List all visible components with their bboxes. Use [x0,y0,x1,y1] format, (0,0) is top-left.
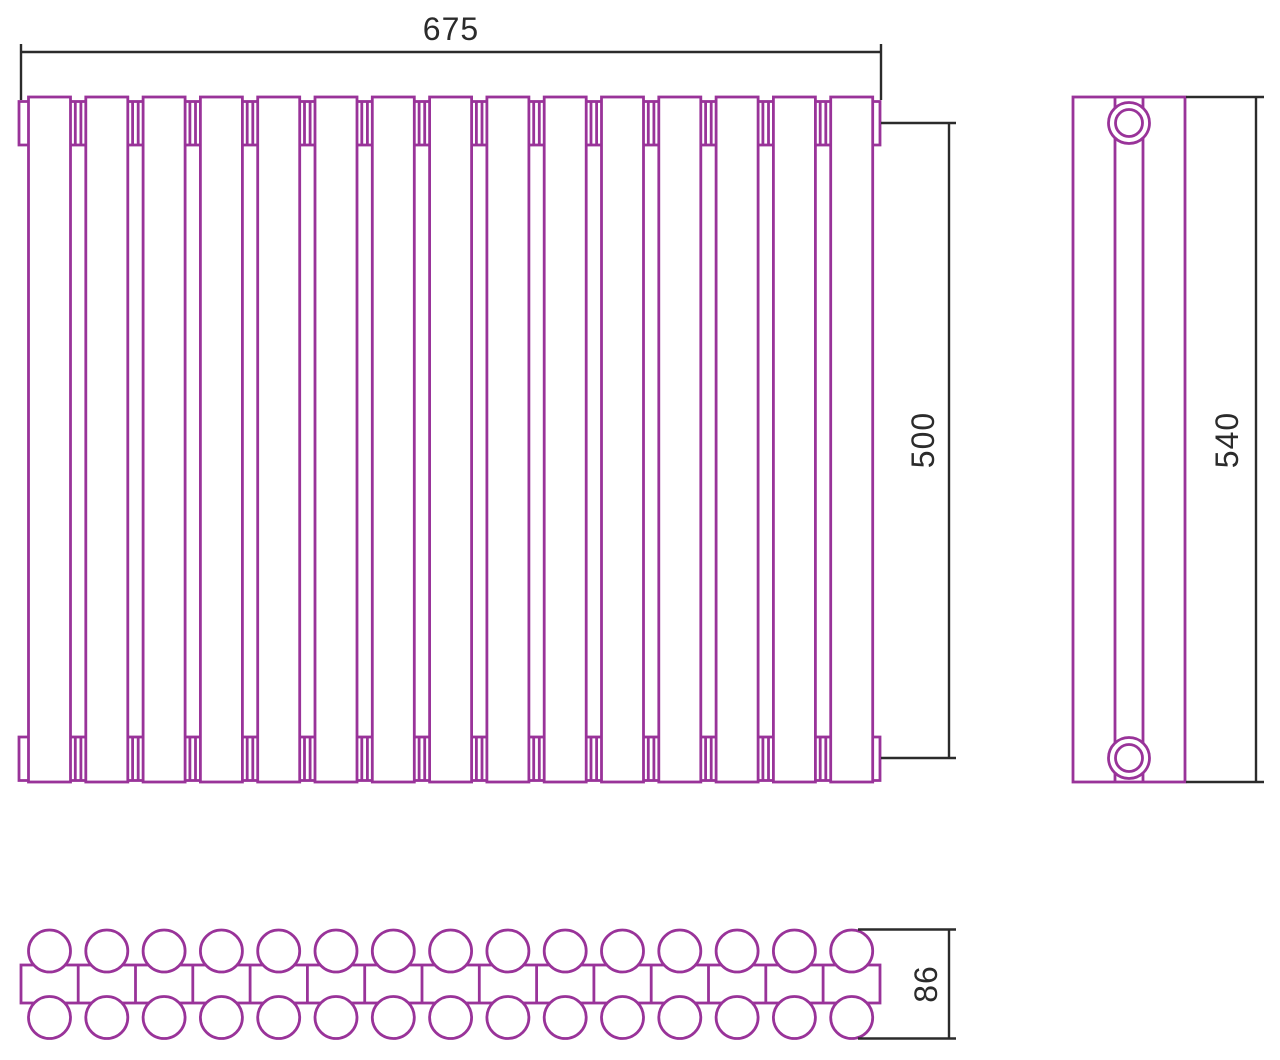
tube-cross-section [602,930,644,972]
radiator-section [602,97,644,782]
side-height-dimension-label: 540 [1209,412,1245,468]
tube-cross-section [372,997,414,1039]
connection-port [1116,110,1143,137]
tube-cross-section [544,930,586,972]
radiator-section [372,97,414,782]
drawing-canvas: 675 500 540 86 [0,0,1280,1060]
technical-drawing: 675 500 540 86 [0,0,1280,1060]
radiator-section [487,97,529,782]
radiator-section [200,97,242,782]
mounting-tab [19,102,29,146]
tube-cross-section [430,930,472,972]
tube-cross-section [143,930,185,972]
radiator-section [29,97,71,782]
side-body [1073,97,1185,782]
tube-cross-section [602,997,644,1039]
radiator-section [544,97,586,782]
tube-cross-section [831,930,873,972]
side-view [1073,97,1185,782]
tube-cross-section [773,930,815,972]
height-dimension: 500 [881,123,956,758]
tube-cross-section [716,930,758,972]
tube-cross-section [430,997,472,1039]
connection-port [1116,745,1143,772]
tube-cross-section [659,930,701,972]
width-dimension-label: 675 [423,11,479,47]
radiator-section [315,97,357,782]
radiator-section [430,97,472,782]
height-dimension-label: 500 [905,412,941,468]
front-view [19,97,880,782]
tube-cross-section [487,930,529,972]
tube-cross-section [659,997,701,1039]
tube-cross-section [86,997,128,1039]
tube-cross-section [143,997,185,1039]
mounting-tab [19,737,29,781]
tube-cross-section [831,997,873,1039]
tube-cross-section [200,997,242,1039]
tube-cross-section [86,930,128,972]
side-height-dimension: 540 [1186,97,1264,782]
radiator-section [143,97,185,782]
tube-cross-section [200,930,242,972]
top-view [21,930,880,1039]
tube-cross-section [372,930,414,972]
tube-cross-section [315,930,357,972]
tube-cross-section [258,930,300,972]
radiator-section [659,97,701,782]
radiator-section [716,97,758,782]
radiator-section [831,97,873,782]
tube-cross-section [773,997,815,1039]
width-dimension: 675 [21,11,881,100]
radiator-section [86,97,128,782]
radiator-section [258,97,300,782]
tube-cross-section [544,997,586,1039]
tube-cross-section [258,997,300,1039]
depth-dimension-label: 86 [908,965,944,1003]
tube-cross-section [487,997,529,1039]
tube-cross-section [716,997,758,1039]
tube-cross-section [29,930,71,972]
tube-cross-section [315,997,357,1039]
radiator-section [773,97,815,782]
tube-cross-section [29,997,71,1039]
